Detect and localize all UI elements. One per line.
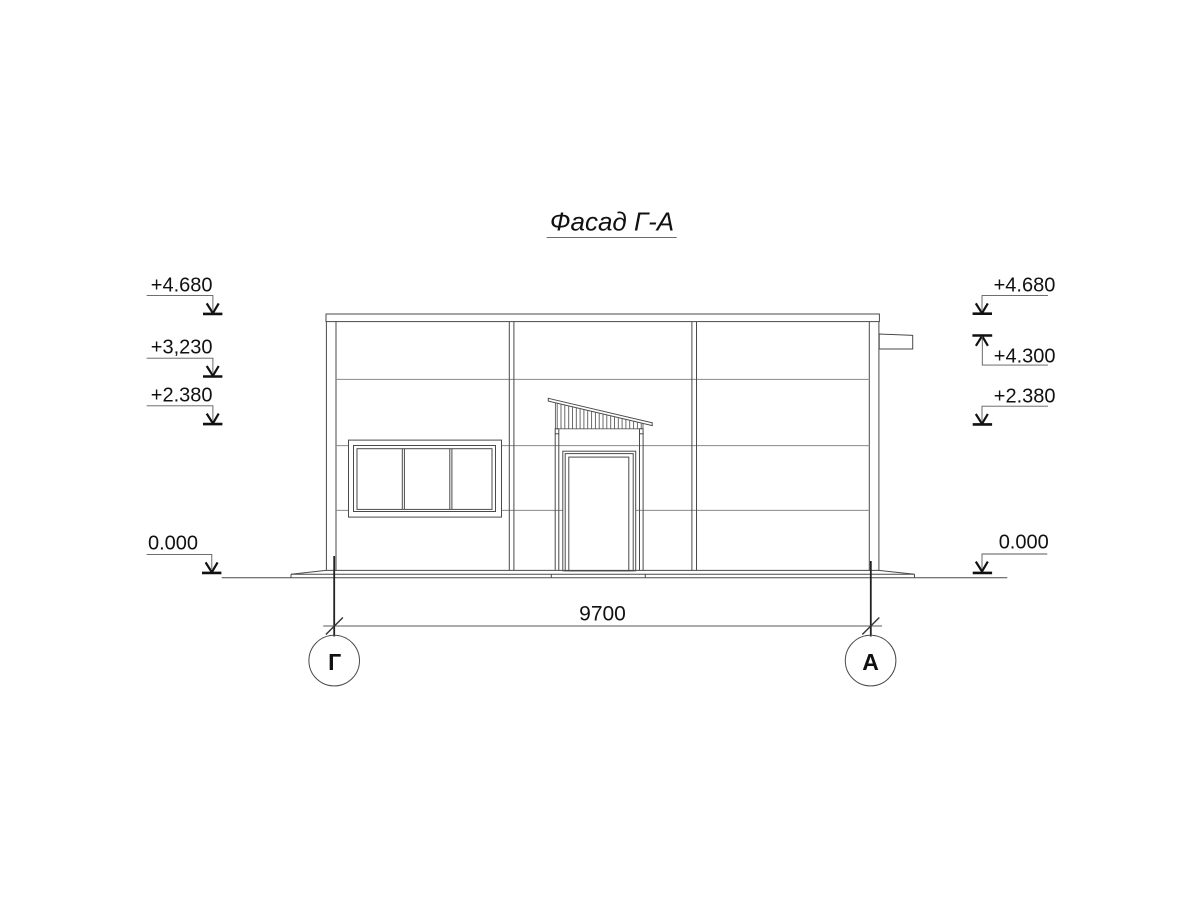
svg-text:+4.680: +4.680	[994, 275, 1056, 297]
svg-text:0.000: 0.000	[999, 532, 1049, 554]
svg-text:0.000: 0.000	[148, 533, 198, 555]
svg-text:А: А	[862, 649, 879, 675]
svg-text:+2.380: +2.380	[994, 386, 1056, 408]
svg-text:+2.380: +2.380	[151, 385, 213, 407]
svg-text:+4.680: +4.680	[151, 275, 213, 297]
svg-text:Фасад Г-А: Фасад Г-А	[550, 207, 674, 237]
svg-text:+3,230: +3,230	[151, 337, 213, 359]
svg-text:Г: Г	[328, 649, 341, 675]
svg-text:9700: 9700	[579, 603, 626, 626]
svg-text:+4.300: +4.300	[994, 346, 1056, 368]
